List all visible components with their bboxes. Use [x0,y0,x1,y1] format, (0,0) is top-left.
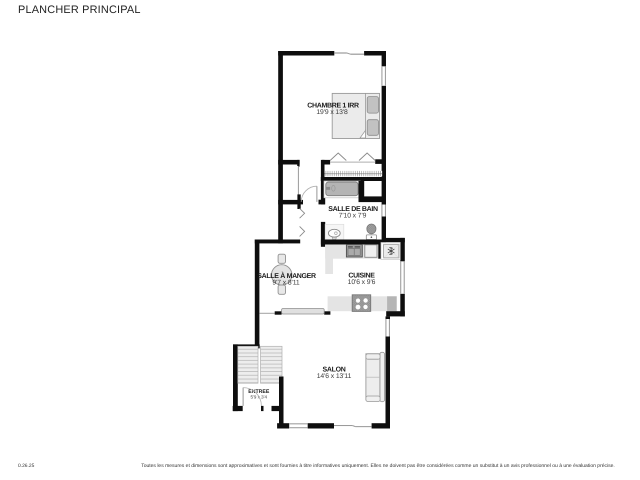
svg-text:0.26.25: 0.26.25 [18,463,35,469]
svg-text:19'9 x 13'8: 19'9 x 13'8 [316,109,348,116]
svg-text:14'6 x 13'11: 14'6 x 13'11 [317,373,352,380]
svg-text:PLANCHER PRINCIPAL: PLANCHER PRINCIPAL [18,4,141,16]
svg-text:9'7 x 8'11: 9'7 x 8'11 [272,280,299,287]
svg-text:10'6 x 9'6: 10'6 x 9'6 [348,279,376,286]
svg-text:7'10 x 7'9: 7'10 x 7'9 [339,212,367,219]
svg-text:Toutes les mesures et dimensio: Toutes les mesures et dimensions sont ap… [141,463,615,469]
